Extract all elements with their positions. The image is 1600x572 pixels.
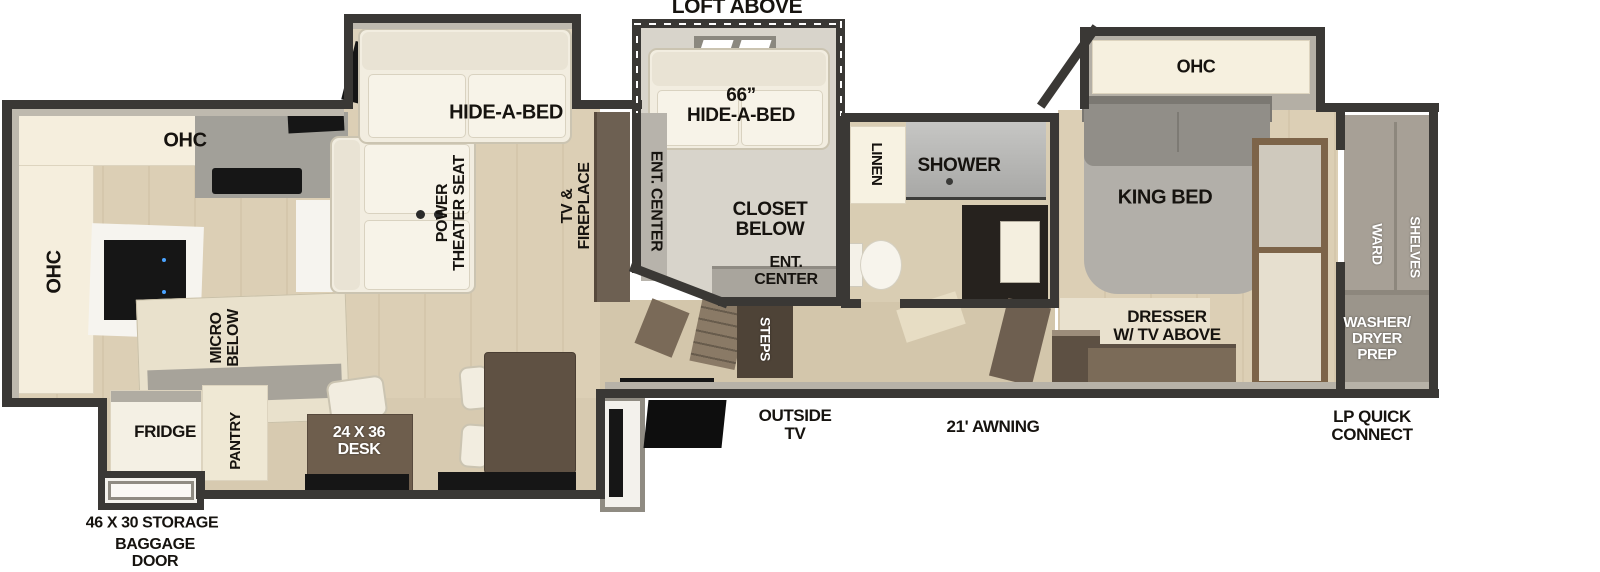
label-outside-tv: OUTSIDE TV	[759, 407, 832, 443]
wall-bottom-main	[596, 389, 1439, 398]
entry-landing	[600, 396, 645, 512]
bath-wall-top	[841, 113, 1059, 122]
label-washer-dryer-prep: WASHER/ DRYER PREP	[1343, 315, 1410, 363]
label-tv-fireplace: TV & FIREPLACE	[560, 162, 594, 249]
outside-tv-box	[643, 400, 726, 448]
baggage-storage-box	[98, 471, 204, 510]
label-closet-below: CLOSET BELOW	[733, 200, 808, 240]
label-pantry: PANTRY	[228, 412, 244, 470]
closet-partition-upper	[1336, 108, 1345, 150]
wall-living-slide-left	[344, 14, 353, 109]
closet-wall-left	[632, 113, 641, 273]
label-shower: SHOWER	[917, 156, 1000, 176]
bath-wall-bottom	[900, 299, 1059, 308]
label-linen: LINEN	[868, 142, 884, 185]
label-storage: 46 X 30 STORAGE	[86, 516, 218, 533]
wall-top-left	[2, 100, 353, 109]
galley-slide-window	[438, 472, 576, 491]
label-lp-quick-connect: LP QUICK CONNECT	[1331, 408, 1412, 444]
closet-wall-bottom	[718, 297, 845, 306]
label-ent-center-side: ENT. CENTER	[647, 151, 664, 252]
label-kitchen-ohc-left: OHC	[44, 250, 65, 293]
rv-floorplan: LOFT ABOVE OHC OHC HIDE-A-BED POWER THEA…	[0, 0, 1600, 572]
wall-top-right	[1316, 103, 1439, 112]
wall-dinette-right	[596, 389, 605, 499]
label-king-bed: KING BED	[1118, 187, 1213, 208]
rear-closet-divider-v	[1394, 122, 1397, 290]
label-ward: WARD	[1370, 223, 1385, 264]
wall-stepdown	[98, 398, 107, 479]
kitchen-sink	[212, 168, 302, 194]
wall-lining	[12, 109, 344, 116]
label-dresser: DRESSER W/ TV ABOVE	[1113, 308, 1220, 344]
range-knob	[162, 290, 166, 294]
toilet-bowl	[860, 240, 902, 290]
label-66-hide-a-bed: 66” HIDE-A-BED	[687, 86, 795, 126]
king-bed-seam	[1177, 112, 1179, 152]
label-baggage-door: BAGGAGE DOOR	[115, 537, 195, 571]
label-shelves: SHELVES	[1408, 216, 1423, 278]
galley-slide-window	[305, 474, 409, 491]
bed-slide-wall-top	[1080, 27, 1325, 36]
wall-living-slide-right	[572, 14, 581, 109]
shower-drain	[946, 178, 953, 185]
label-awning: 21' AWNING	[947, 418, 1040, 436]
bath-wall-right	[1050, 113, 1059, 308]
label-fridge: FRIDGE	[134, 423, 196, 441]
loft-dashed-wall-top	[632, 19, 845, 28]
medicine-cabinet	[1000, 221, 1040, 283]
bedroom-closet-door	[1252, 138, 1328, 388]
wall-lining	[12, 109, 19, 398]
wall-living-slide-top	[344, 14, 581, 23]
range-knob	[162, 258, 166, 262]
entry-door	[609, 409, 623, 497]
bath-wall-left	[841, 113, 850, 308]
door-lower-pane	[1259, 253, 1321, 381]
wall-front-left	[2, 100, 12, 407]
hide-a-bed-sofa	[358, 28, 572, 144]
loft-dashed-wall-left	[632, 19, 641, 117]
label-loft-above: LOFT ABOVE	[672, 0, 803, 18]
wall-lining	[353, 23, 572, 29]
fridge-top-edge	[111, 391, 201, 402]
dinette-table	[484, 352, 576, 474]
wall-lining	[605, 382, 1429, 389]
loft-sofa-back	[652, 52, 826, 86]
bath-vanity	[962, 205, 1048, 299]
sofa-back	[362, 32, 568, 70]
baggage-door-panel	[108, 481, 194, 500]
label-theater-seat: POWER THEATER SEAT	[435, 155, 469, 271]
label-steps: STEPS	[758, 317, 773, 361]
bed-slide-wall-left	[1080, 27, 1089, 109]
bed-slide-wall-right	[1316, 27, 1325, 112]
label-bedroom-ohc: OHC	[1177, 57, 1216, 76]
bath-wall-bottom	[841, 299, 861, 308]
label-desk: 24 X 36 DESK	[333, 425, 385, 459]
wall-front-bottom	[2, 398, 107, 407]
label-hide-a-bed: HIDE-A-BED	[449, 102, 563, 123]
wall-rear	[1429, 108, 1438, 398]
wall-galley-bottom	[196, 490, 605, 499]
fireplace-tv-wall	[594, 112, 630, 302]
theater-seat-back	[334, 140, 360, 290]
label-ent-center-lower: ENT. CENTER	[754, 255, 817, 289]
loft-dashed-wall-right	[836, 19, 845, 120]
cupholder	[416, 210, 425, 219]
label-kitchen-ohc-top: OHC	[163, 130, 206, 151]
label-micro-below: MICRO BELOW	[209, 309, 243, 367]
